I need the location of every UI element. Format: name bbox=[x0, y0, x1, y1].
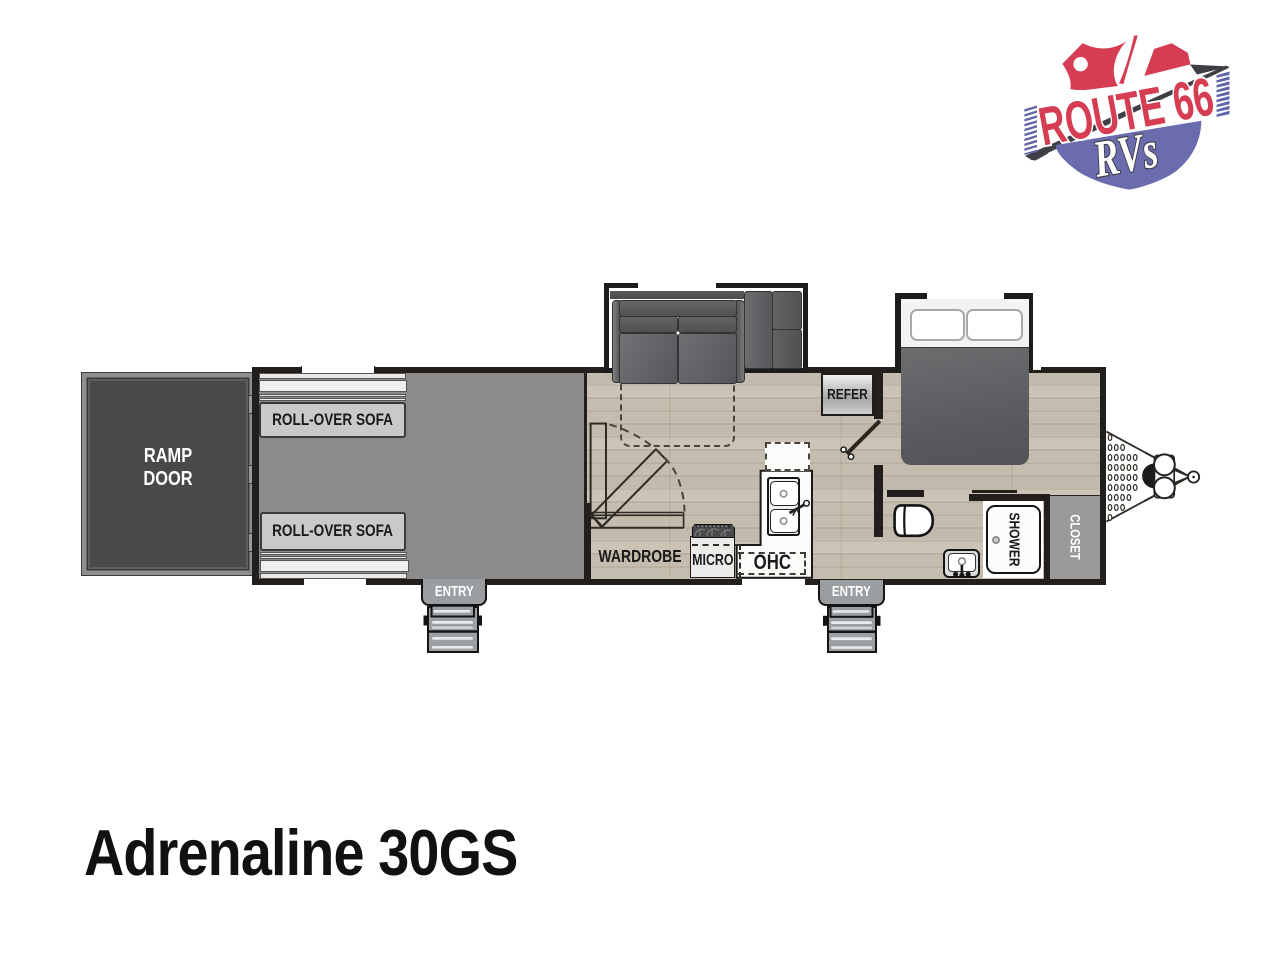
svg-text:RVs: RVs bbox=[1088, 122, 1162, 189]
